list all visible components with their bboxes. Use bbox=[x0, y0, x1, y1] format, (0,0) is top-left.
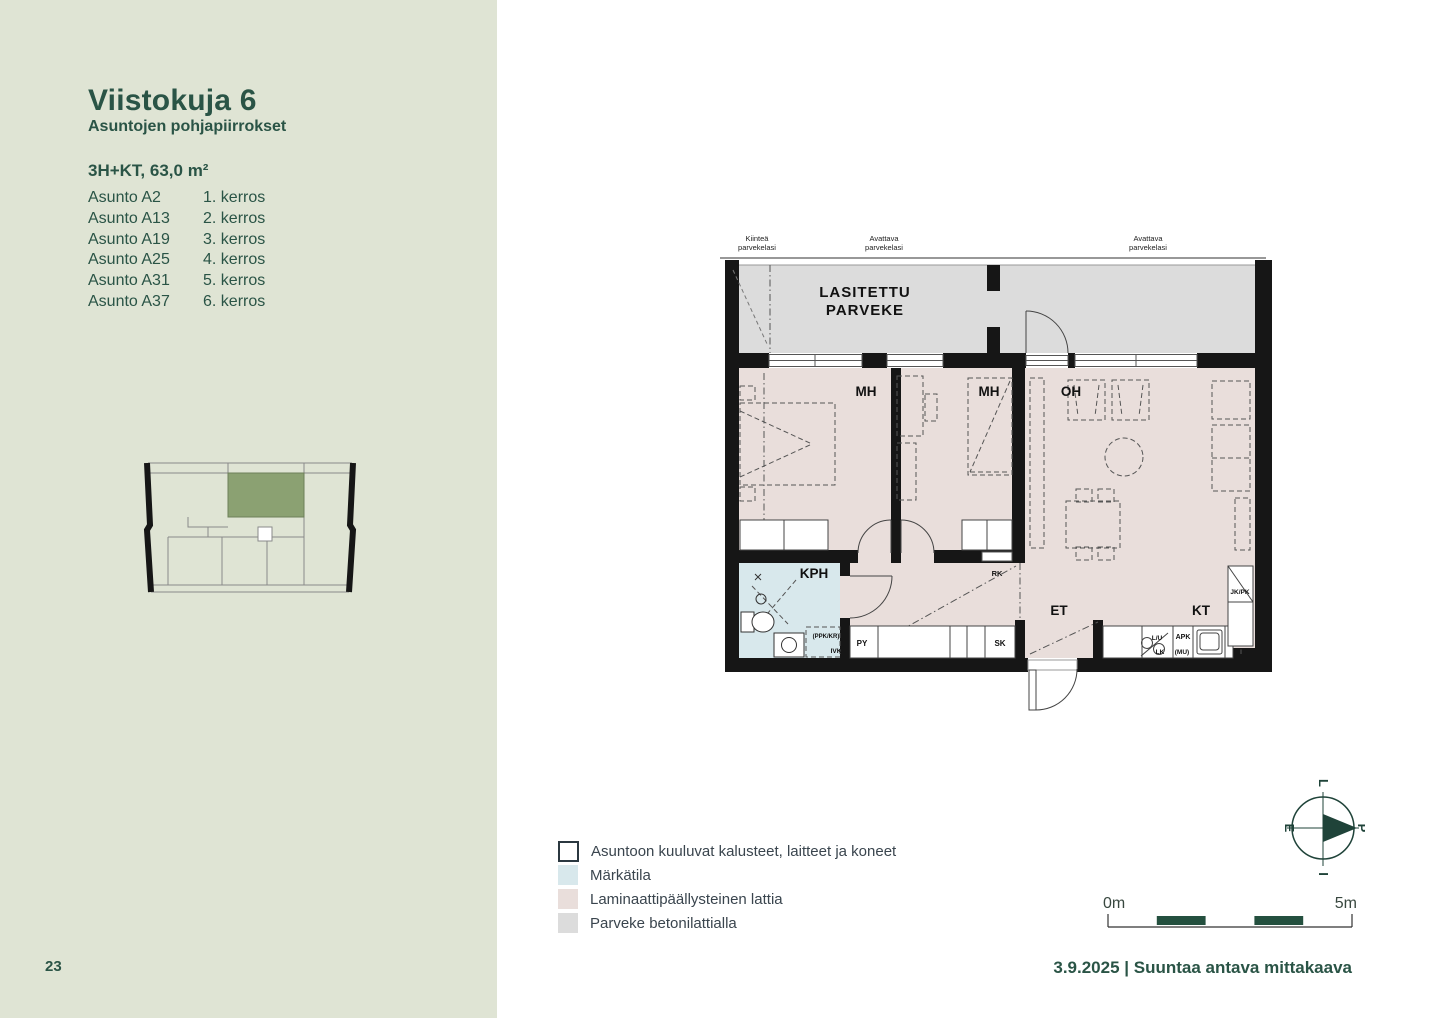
svg-text:I: I bbox=[1316, 872, 1331, 876]
svg-text:P: P bbox=[1355, 824, 1365, 833]
svg-text:L: L bbox=[1316, 779, 1331, 787]
svg-text:parvekelasi: parvekelasi bbox=[1129, 243, 1167, 252]
apartment-type: 3H+KT, 63,0 m² bbox=[88, 161, 208, 181]
room-label-et: ET bbox=[1050, 603, 1068, 618]
highlighted-unit bbox=[228, 473, 304, 517]
list-item: Asunto A19 3. kerros bbox=[88, 230, 265, 251]
label-ivk: IVK bbox=[831, 648, 842, 655]
svg-text:Kiinteä: Kiinteä bbox=[746, 234, 770, 243]
label-apk: APK bbox=[1176, 634, 1191, 641]
label-ppk: (PPK/KR) bbox=[813, 634, 840, 640]
svg-text:parvekelasi: parvekelasi bbox=[738, 243, 776, 252]
svg-text:Avattava: Avattava bbox=[1133, 234, 1163, 243]
apartment-name: Asunto A37 bbox=[88, 292, 203, 313]
legend-item: Parveke betonilattialla bbox=[558, 913, 896, 933]
compass-rose: L P E I bbox=[1285, 772, 1365, 884]
key-plan-diagram bbox=[140, 455, 360, 597]
svg-text:Avattava: Avattava bbox=[869, 234, 899, 243]
apartment-name: Asunto A2 bbox=[88, 188, 203, 209]
svg-text:E: E bbox=[1285, 824, 1297, 833]
apartment-floor: 1. kerros bbox=[203, 188, 265, 209]
brochure-page: Viistokuja 6 Asuntojen pohjapiirrokset 3… bbox=[0, 0, 1440, 1018]
floor-fills bbox=[739, 265, 1255, 658]
room-label-oh: OH bbox=[1061, 384, 1081, 399]
glazing-labels: Kiinteä parvekelasi Avattava parvekelasi… bbox=[738, 234, 1167, 252]
svg-text:PARVEKE: PARVEKE bbox=[826, 302, 904, 319]
scale-segment bbox=[1157, 916, 1206, 925]
room-label-kt: KT bbox=[1192, 603, 1211, 618]
scale-start-label: 0m bbox=[1103, 895, 1125, 912]
label-rk: RK bbox=[992, 569, 1003, 578]
room-label-mh1: MH bbox=[856, 384, 877, 399]
scale-segment bbox=[1254, 916, 1303, 925]
page-number: 23 bbox=[45, 958, 62, 975]
sidebar: Viistokuja 6 Asuntojen pohjapiirrokset 3… bbox=[0, 0, 497, 1018]
svg-text:parvekelasi: parvekelasi bbox=[865, 243, 903, 252]
legend-item: Märkätila bbox=[558, 865, 896, 885]
legend-swatch-balcony bbox=[558, 913, 578, 933]
label-lk: LK bbox=[1156, 649, 1165, 656]
apartment-floor: 4. kerros bbox=[203, 250, 265, 271]
apartment-name: Asunto A31 bbox=[88, 271, 203, 292]
apartment-floor: 2. kerros bbox=[203, 209, 265, 230]
label-jkpk: JK/PK bbox=[1230, 589, 1249, 596]
page-title: Viistokuja 6 bbox=[88, 84, 257, 118]
label-py: PY bbox=[857, 639, 868, 648]
room-label-mh2: MH bbox=[979, 384, 1000, 399]
page-subtitle: Asuntojen pohjapiirrokset bbox=[88, 118, 286, 136]
label-sk: SK bbox=[994, 639, 1005, 648]
date-and-disclaimer: 3.9.2025 | Suuntaa antava mittakaava bbox=[1053, 958, 1352, 978]
list-item: Asunto A37 6. kerros bbox=[88, 292, 265, 313]
scale-bar: 0m 5m bbox=[1095, 893, 1365, 935]
apartment-floor: 6. kerros bbox=[203, 292, 265, 313]
legend: Asuntoon kuuluvat kalusteet, laitteet ja… bbox=[558, 841, 896, 937]
label-mu: (MU) bbox=[1175, 649, 1189, 656]
key-plan-left-wall bbox=[147, 463, 151, 592]
apartment-name: Asunto A13 bbox=[88, 209, 203, 230]
apartment-name: Asunto A19 bbox=[88, 230, 203, 251]
room-label-balcony: LASITETTU bbox=[819, 284, 911, 301]
legend-swatch-units bbox=[558, 841, 579, 862]
list-item: Asunto A25 4. kerros bbox=[88, 250, 265, 271]
legend-swatch-wet-room bbox=[558, 865, 578, 885]
scale-end-label: 5m bbox=[1335, 895, 1357, 912]
key-plan-right-wall bbox=[349, 463, 353, 592]
room-label-kph: KPH bbox=[800, 566, 829, 581]
apartment-list: Asunto A2 1. kerros Asunto A13 2. kerros… bbox=[88, 188, 265, 313]
apartment-floor: 5. kerros bbox=[203, 271, 265, 292]
list-item: Asunto A13 2. kerros bbox=[88, 209, 265, 230]
apartment-name: Asunto A25 bbox=[88, 250, 203, 271]
label-lu: L/U bbox=[1152, 635, 1163, 642]
list-item: Asunto A2 1. kerros bbox=[88, 188, 265, 209]
rk-panel bbox=[982, 552, 1012, 561]
floor-plan: Kiinteä parvekelasi Avattava parvekelasi… bbox=[700, 228, 1280, 733]
legend-item: Laminaattipäällysteinen lattia bbox=[558, 889, 896, 909]
apartment-floor: 3. kerros bbox=[203, 230, 265, 251]
legend-item: Asuntoon kuuluvat kalusteet, laitteet ja… bbox=[558, 841, 896, 861]
list-item: Asunto A31 5. kerros bbox=[88, 271, 265, 292]
legend-swatch-laminate bbox=[558, 889, 578, 909]
